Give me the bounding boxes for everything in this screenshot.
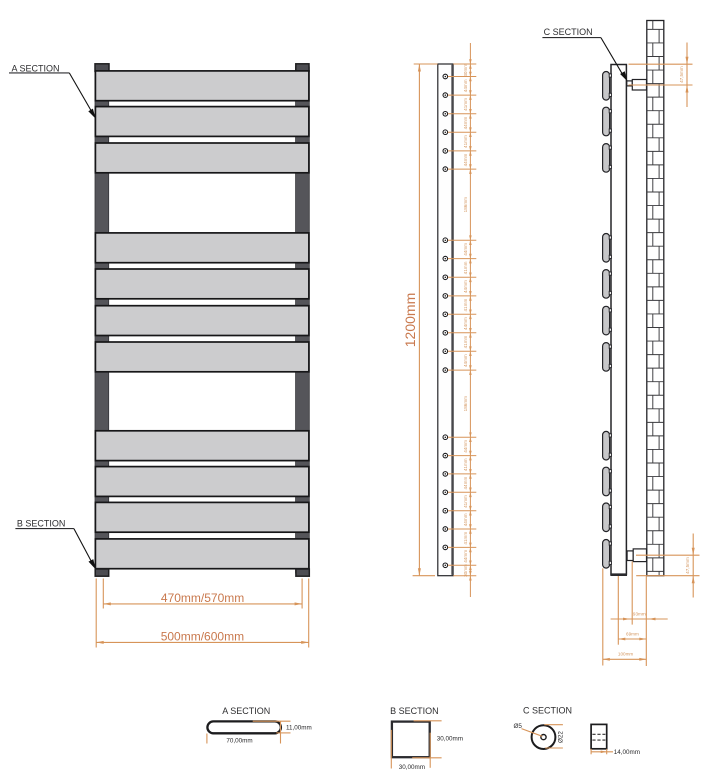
- svg-text:41mm: 41mm: [463, 299, 468, 312]
- svg-text:41mm: 41mm: [463, 458, 468, 471]
- svg-text:44mm: 44mm: [463, 153, 468, 166]
- svg-text:A SECTION: A SECTION: [12, 63, 60, 73]
- svg-text:B SECTION: B SECTION: [390, 706, 439, 716]
- svg-text:470mm/570mm: 470mm/570mm: [161, 591, 244, 605]
- svg-text:500mm/600mm: 500mm/600mm: [161, 629, 244, 643]
- svg-text:30mm: 30mm: [463, 564, 468, 577]
- svg-text:47,5mm: 47,5mm: [685, 557, 690, 574]
- svg-text:44mm: 44mm: [463, 354, 468, 367]
- svg-text:Ø22: Ø22: [557, 731, 564, 743]
- svg-text:44mm: 44mm: [463, 317, 468, 330]
- svg-text:44mm: 44mm: [463, 440, 468, 453]
- svg-text:30mm: 30mm: [463, 64, 468, 77]
- svg-text:44mm: 44mm: [463, 477, 468, 490]
- svg-text:186mm: 186mm: [463, 197, 468, 212]
- svg-text:30,00mm: 30,00mm: [399, 764, 425, 771]
- svg-text:186mm: 186mm: [463, 396, 468, 411]
- svg-text:41mm: 41mm: [463, 495, 468, 508]
- svg-text:41mm: 41mm: [463, 335, 468, 348]
- svg-text:44mm: 44mm: [463, 550, 468, 563]
- svg-text:41mm: 41mm: [463, 261, 468, 274]
- svg-text:44mm: 44mm: [463, 243, 468, 256]
- svg-text:30,00mm: 30,00mm: [437, 736, 463, 743]
- svg-text:44mm: 44mm: [463, 116, 468, 129]
- svg-text:B SECTION: B SECTION: [17, 518, 66, 528]
- svg-text:41mm: 41mm: [463, 135, 468, 148]
- svg-text:Ø5: Ø5: [514, 723, 523, 730]
- svg-text:70,00mm: 70,00mm: [226, 738, 252, 745]
- svg-text:100mm: 100mm: [618, 652, 633, 657]
- svg-text:44mm: 44mm: [463, 280, 468, 293]
- svg-text:C SECTION: C SECTION: [544, 27, 593, 37]
- svg-text:11,00mm: 11,00mm: [286, 725, 312, 732]
- svg-text:47,5mm: 47,5mm: [679, 66, 684, 83]
- svg-text:14,00mm: 14,00mm: [614, 749, 640, 756]
- svg-text:A SECTION: A SECTION: [222, 706, 270, 716]
- svg-text:44mm: 44mm: [463, 513, 468, 526]
- svg-text:93mm: 93mm: [633, 611, 646, 616]
- svg-text:41mm: 41mm: [463, 98, 468, 111]
- svg-text:69mm: 69mm: [626, 631, 639, 636]
- svg-text:44mm: 44mm: [463, 79, 468, 92]
- svg-text:41mm: 41mm: [463, 532, 468, 545]
- svg-text:C SECTION: C SECTION: [523, 706, 572, 716]
- svg-text:1200mm: 1200mm: [402, 293, 418, 347]
